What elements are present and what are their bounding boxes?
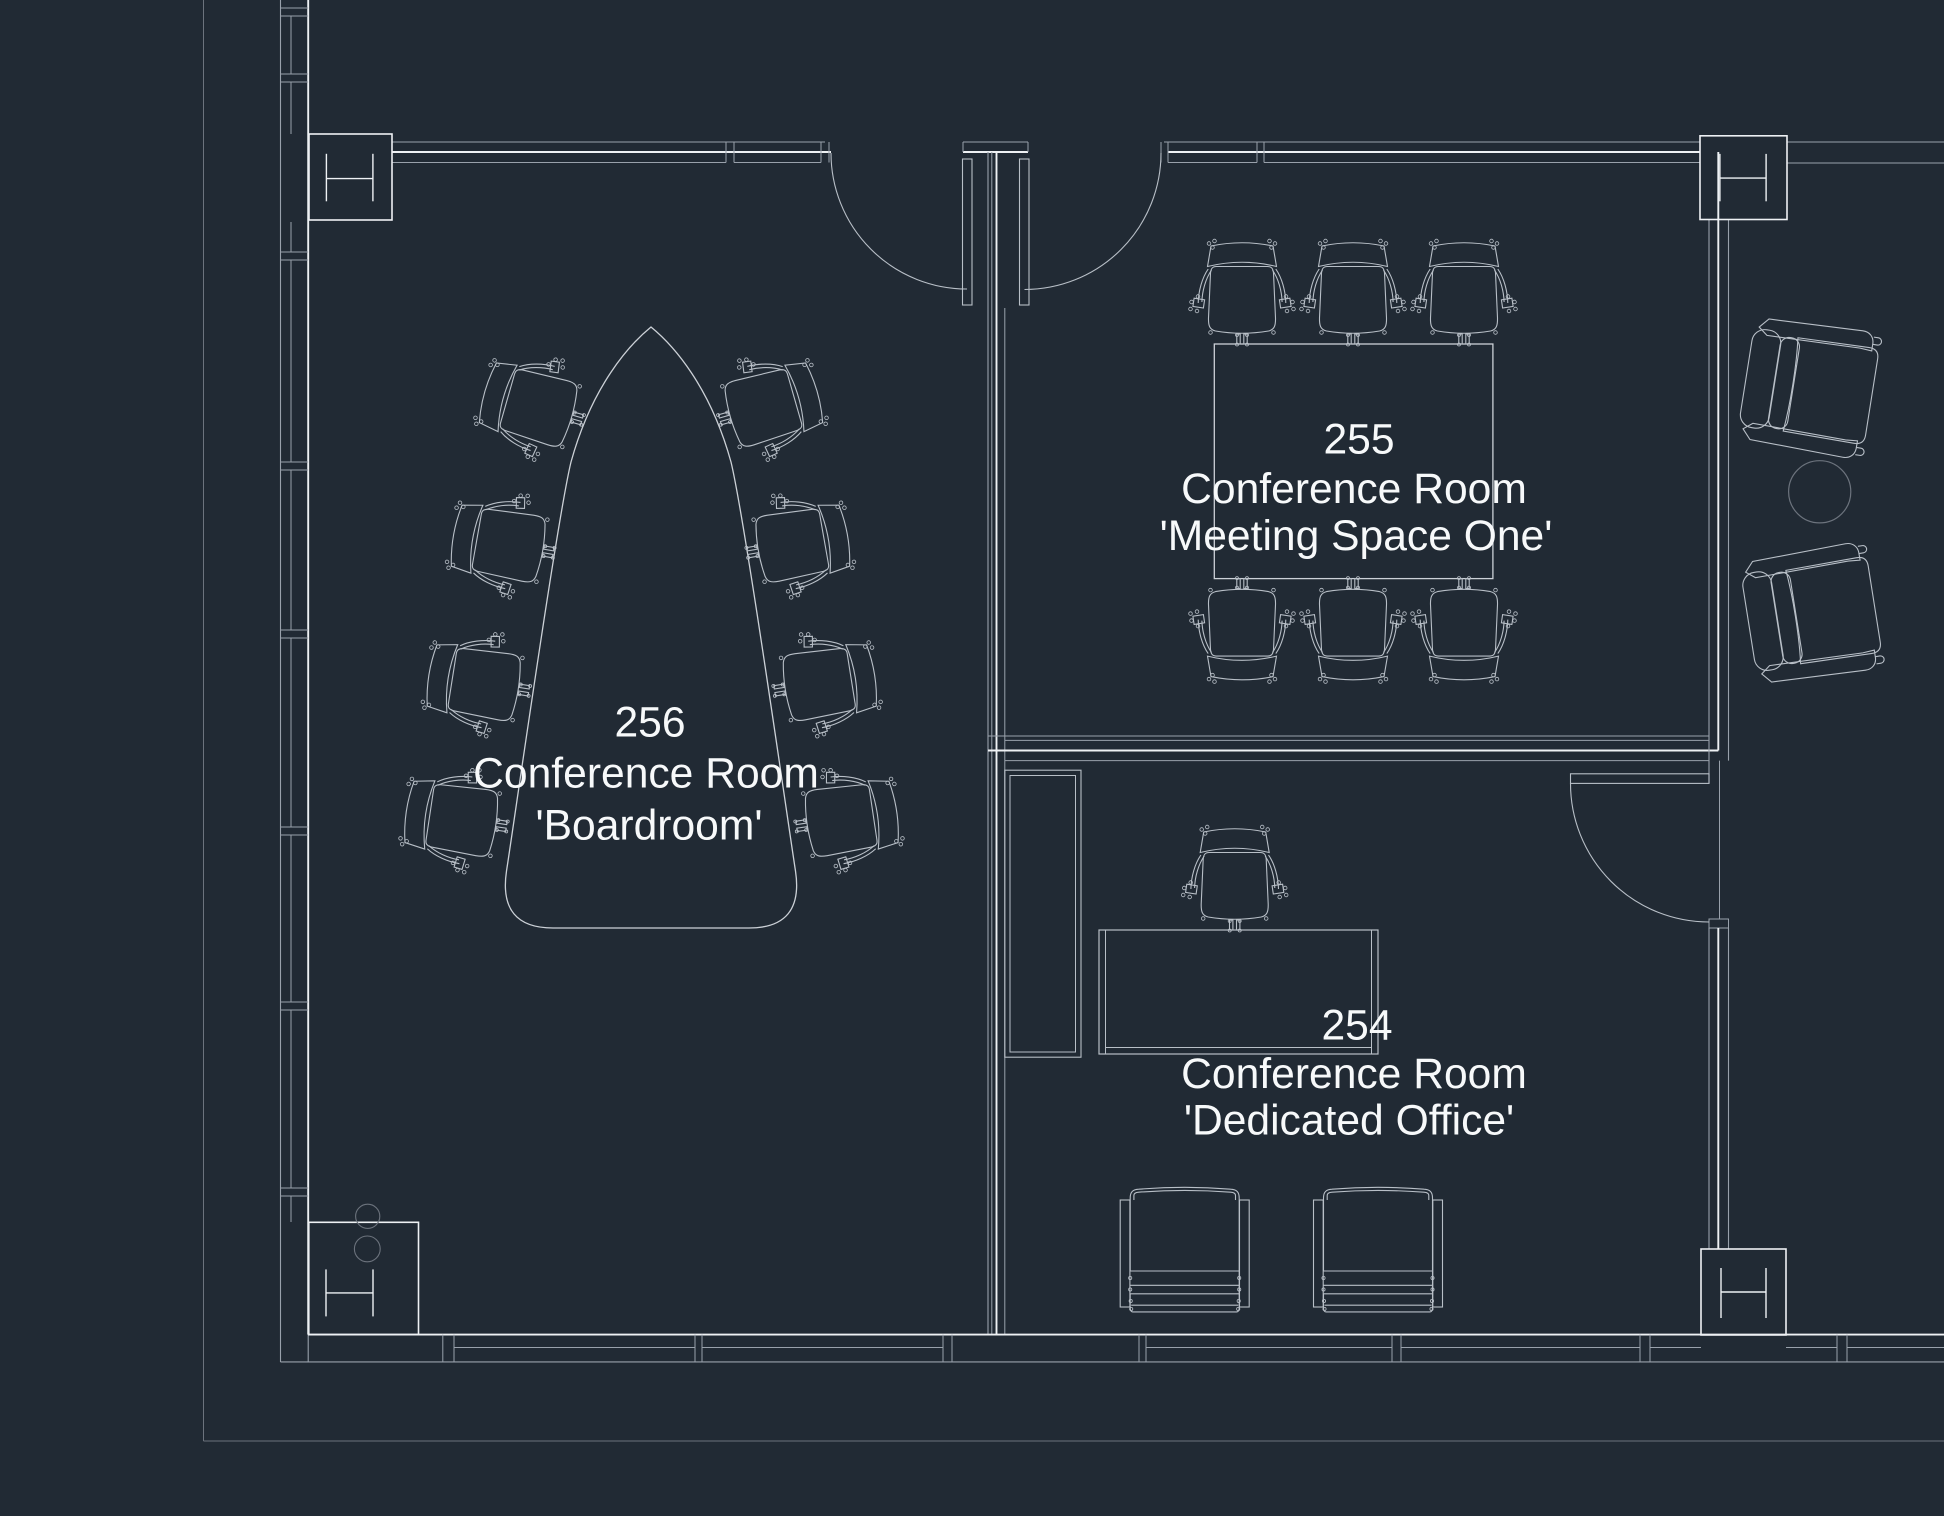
- svg-text:'Boardroom': 'Boardroom': [536, 801, 763, 849]
- svg-text:Conference Room: Conference Room: [1181, 465, 1527, 513]
- svg-text:256: 256: [614, 699, 685, 747]
- svg-text:'Dedicated Office': 'Dedicated Office': [1184, 1097, 1514, 1145]
- svg-text:'Meeting Space One': 'Meeting Space One': [1160, 512, 1553, 560]
- svg-text:254: 254: [1321, 1002, 1392, 1050]
- svg-text:Conference Room: Conference Room: [1181, 1050, 1527, 1098]
- svg-text:Conference Room: Conference Room: [473, 749, 819, 797]
- svg-text:255: 255: [1323, 416, 1394, 464]
